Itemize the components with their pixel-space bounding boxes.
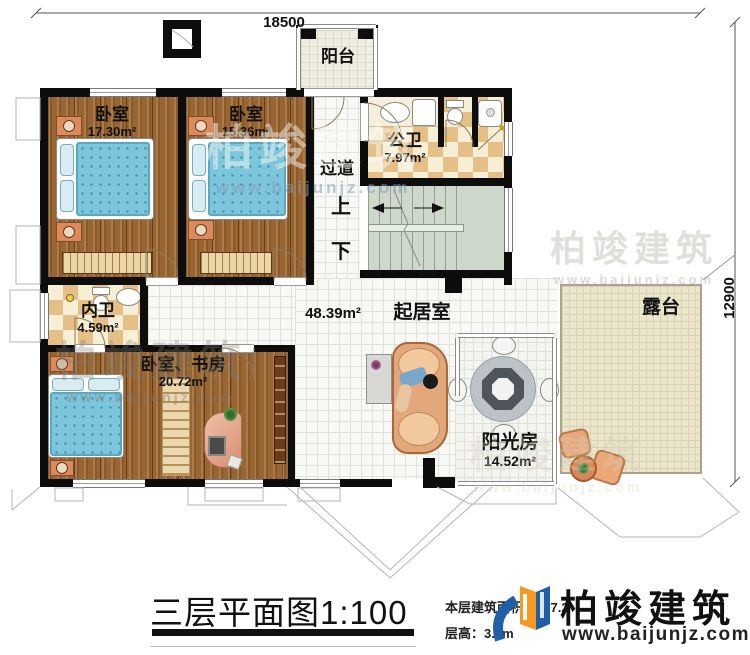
title-underline [152, 629, 414, 636]
pillow [88, 378, 120, 391]
private-bath-door-opening [75, 344, 105, 353]
living-area-label: 48.39m² [298, 306, 368, 323]
sunroom-glass-top [458, 333, 554, 338]
bedroom-study-window-2 [205, 479, 263, 488]
sunroom-glass-right [552, 338, 557, 484]
public-bath-door-opening [360, 103, 369, 141]
sunroom-glass-left [455, 338, 460, 396]
wall-bed2-corridor [306, 97, 314, 285]
balcony-door-opening [304, 88, 374, 97]
stairs-window-right [504, 188, 513, 252]
balcony-label: 阳台 [306, 48, 370, 67]
sink [380, 102, 410, 123]
company-logo: 柏竣建筑 www.baijunjz.com [492, 578, 748, 652]
logo-url: www.baijunjz.com [562, 624, 750, 646]
chimney [163, 20, 201, 58]
column-sunroom-L-h [423, 477, 455, 488]
stairs-landing [460, 186, 504, 270]
wall-privbath-right [140, 285, 148, 352]
pillow [60, 144, 74, 176]
floor-plan-page: 阳台 卧室 17.30m² 卧室 15.36m² 公卫 7.97m² 过道 上 … [0, 0, 750, 655]
wardrobe [200, 252, 272, 274]
terrace-plant [578, 463, 589, 474]
bedroom-study-door-opening [222, 344, 254, 353]
pillow [60, 180, 74, 212]
bedroom2-window-top [222, 88, 286, 97]
logo-mark-icon [492, 578, 558, 650]
wall-bed1-bed2 [178, 97, 186, 285]
hall-floor [148, 285, 295, 345]
plant [224, 408, 237, 421]
bedroom1-label: 卧室 17.30m² [62, 106, 162, 139]
washing-machine [412, 99, 436, 126]
nightstand [50, 356, 74, 372]
private-bath-label: 内卫 4.59m² [58, 302, 138, 335]
corridor-label: 过道 [314, 160, 360, 179]
pillow [52, 378, 84, 391]
bed2-mattress [208, 142, 286, 216]
stairs-down-label: 下 [326, 241, 356, 263]
computer [208, 436, 226, 456]
shower-drain [486, 108, 495, 117]
bedroom-study-label: 卧室、书房 20.72m² [126, 356, 240, 389]
dimension-top: 18500 [252, 15, 316, 32]
toilet-bowl [447, 108, 463, 125]
toilet [446, 100, 464, 108]
column-sunroom-top [445, 277, 462, 293]
bed3-mattress [50, 392, 122, 456]
public-bath-label: 公卫 7.97m² [372, 132, 438, 165]
wardrobe [62, 252, 152, 274]
wall-stairs-bottom [360, 270, 512, 278]
watermark: 柏竣建筑 www.baijunjz.com [518, 220, 750, 287]
rug [162, 378, 190, 476]
sofa-cushion [398, 412, 440, 446]
chair [492, 336, 516, 355]
bedroom2-door-opening [274, 277, 306, 286]
bookshelf [274, 356, 286, 464]
dimension-right: 12900 [722, 266, 739, 330]
stairs-up-label: 上 [326, 196, 356, 218]
bedroom1-window-top [90, 88, 156, 97]
balcony-railing-left [296, 28, 301, 90]
balcony-railing-right [373, 28, 378, 90]
sunroom-glass-bottom [458, 481, 554, 486]
shower-window-right [504, 122, 513, 156]
living-window-bottom [300, 479, 340, 488]
title-underline-thin [150, 646, 416, 647]
wall-bath-bottom [360, 178, 512, 186]
wall-top-right [374, 88, 512, 97]
pillow [192, 180, 206, 212]
nightstand [50, 460, 74, 476]
wall-left [40, 88, 48, 487]
wall-bed3-right [288, 345, 295, 487]
nightstand [56, 222, 82, 242]
lamp [66, 294, 74, 302]
tv-plant [371, 360, 381, 370]
wall-right-upper [504, 88, 512, 285]
stairs-handrail [368, 224, 464, 232]
toilet [92, 287, 110, 295]
living-floor-right [460, 278, 558, 333]
bath-partition-1 [438, 97, 444, 147]
bedroom1-door-opening [146, 277, 178, 286]
pillow [192, 144, 206, 176]
bedroom-study-window-1 [73, 479, 145, 488]
bed1-mattress [76, 142, 150, 216]
bath-partition-2 [472, 97, 478, 147]
sunroom-label: 阳光房 14.52m² [472, 433, 548, 469]
person-head [423, 374, 438, 389]
bedroom2-label: 卧室 15.36m² [196, 106, 296, 139]
plan-title: 三层平面图1:100 [150, 586, 408, 634]
nightstand [188, 220, 214, 240]
terrace-label: 露台 [630, 298, 692, 319]
private-bath-window-left [40, 293, 49, 339]
floor-height-label: 层高： [445, 626, 484, 641]
living-label: 起居室 [380, 303, 464, 324]
